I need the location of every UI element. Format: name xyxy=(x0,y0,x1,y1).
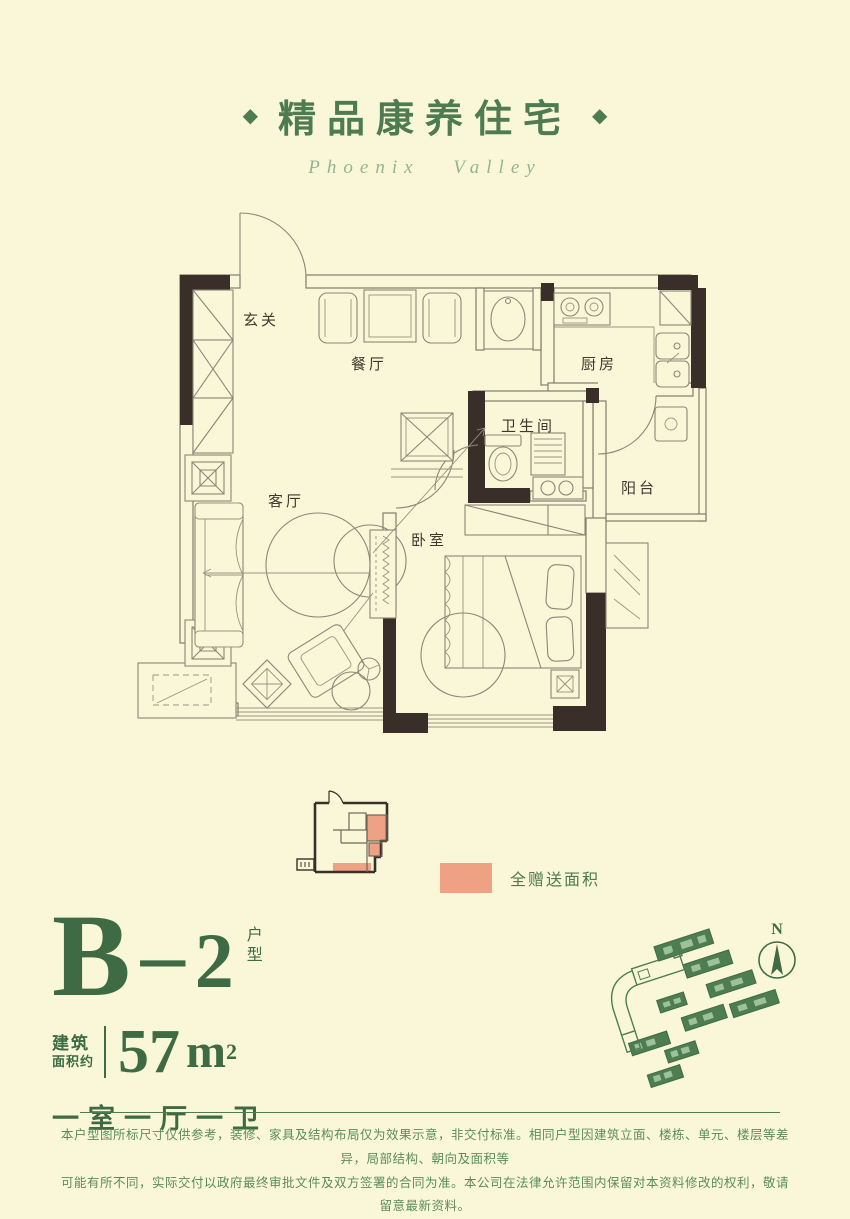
north-label: N xyxy=(771,921,783,938)
diamond-right-icon: ◆ xyxy=(592,103,607,128)
area-divider xyxy=(104,1026,106,1078)
floor-plan-drawing: 玄关 餐厅 厨房 卫生间 阳台 客厅 卧室 xyxy=(133,203,723,748)
site-buildings xyxy=(605,915,792,1091)
washbasin xyxy=(484,291,533,349)
walls-dark xyxy=(180,275,706,733)
plant-box xyxy=(551,670,579,698)
disclaimer-line2: 可能有所不同，实际交付以政府最终审批文件及双方签署的合同为准。本公司在法律允许范… xyxy=(55,1172,795,1219)
gift-area-legend: 全赠送面积 xyxy=(440,863,600,893)
room-label-living: 客厅 xyxy=(268,493,304,510)
bath-counter xyxy=(533,477,583,499)
armchair xyxy=(286,623,366,700)
room-label-balcony: 阳台 xyxy=(621,480,657,497)
unit-info: B － 2 户型 建筑 面积约 57 m 2 一室一厅一卫 xyxy=(52,908,352,1136)
site-plan: N xyxy=(605,912,820,1102)
area-label-line2: 面积约 xyxy=(52,1054,94,1070)
key-plan-drawing xyxy=(293,783,433,901)
water-heater xyxy=(655,407,687,441)
floorplan-brochure-page: { "header": { "diamond_left": "◆", "titl… xyxy=(0,0,850,1205)
disclaimer-line1: 本户型图所标尺寸仅供参考，装修、家具及结构布局仅为效果示意，非交付标准。相同户型… xyxy=(55,1124,795,1172)
unit-area-labels: 建筑 面积约 xyxy=(52,1033,94,1071)
floor-plan: 玄关 餐厅 厨房 卫生间 阳台 客厅 卧室 xyxy=(133,203,723,753)
wardrobe xyxy=(465,505,585,535)
room-label-bathroom: 卫生间 xyxy=(501,418,555,435)
diamond-left-icon: ◆ xyxy=(243,103,258,128)
room-label-dining: 餐厅 xyxy=(351,356,387,373)
north-compass: N xyxy=(759,921,795,978)
unit-type-row: B － 2 户型 xyxy=(52,908,352,1005)
unit-type-letter: B xyxy=(52,908,131,1005)
corridor-cabinet xyxy=(391,413,463,477)
unit-area-row: 建筑 面积约 57 m 2 xyxy=(52,1021,352,1083)
toilet-icon xyxy=(485,435,521,481)
key-plan-outside-box xyxy=(297,859,314,870)
room-label-bedroom: 卧室 xyxy=(411,532,447,549)
unit-type-number: 2 xyxy=(195,922,234,1000)
unit-type-vertical-label: 户型 xyxy=(240,926,264,966)
fridge xyxy=(660,291,691,325)
stove xyxy=(554,293,610,325)
title-row: ◆ 精品康养住宅 ◆ xyxy=(0,88,850,143)
area-label-line1: 建筑 xyxy=(52,1033,94,1054)
area-value: 57 xyxy=(118,1021,180,1083)
page-title: 精品康养住宅 xyxy=(278,88,572,143)
key-plan xyxy=(293,783,433,906)
divider-rule xyxy=(80,1112,780,1113)
gift-area-label: 全赠送面积 xyxy=(510,866,600,890)
site-plan-drawing: N xyxy=(605,912,820,1097)
kitchen-sink xyxy=(554,327,689,387)
sofa xyxy=(195,503,243,647)
side-table-diamond xyxy=(243,660,291,708)
entry-closet xyxy=(193,290,233,453)
room-label-kitchen: 厨房 xyxy=(581,356,617,373)
gift-area-swatch xyxy=(440,863,492,893)
bed xyxy=(445,556,581,668)
dining-table xyxy=(319,290,461,343)
page-subtitle: Phoenix Valley xyxy=(0,157,850,179)
area-unit: m xyxy=(186,1028,226,1076)
room-label-entry: 玄关 xyxy=(243,312,279,329)
tv-console xyxy=(370,530,396,618)
area-exponent: 2 xyxy=(226,1039,237,1065)
washing-machine xyxy=(531,433,565,475)
unit-type-separator: － xyxy=(133,936,193,996)
ac-platform xyxy=(138,663,236,718)
page-header: ◆ 精品康养住宅 ◆ Phoenix Valley xyxy=(0,88,850,179)
north-arrow-icon xyxy=(771,944,783,975)
